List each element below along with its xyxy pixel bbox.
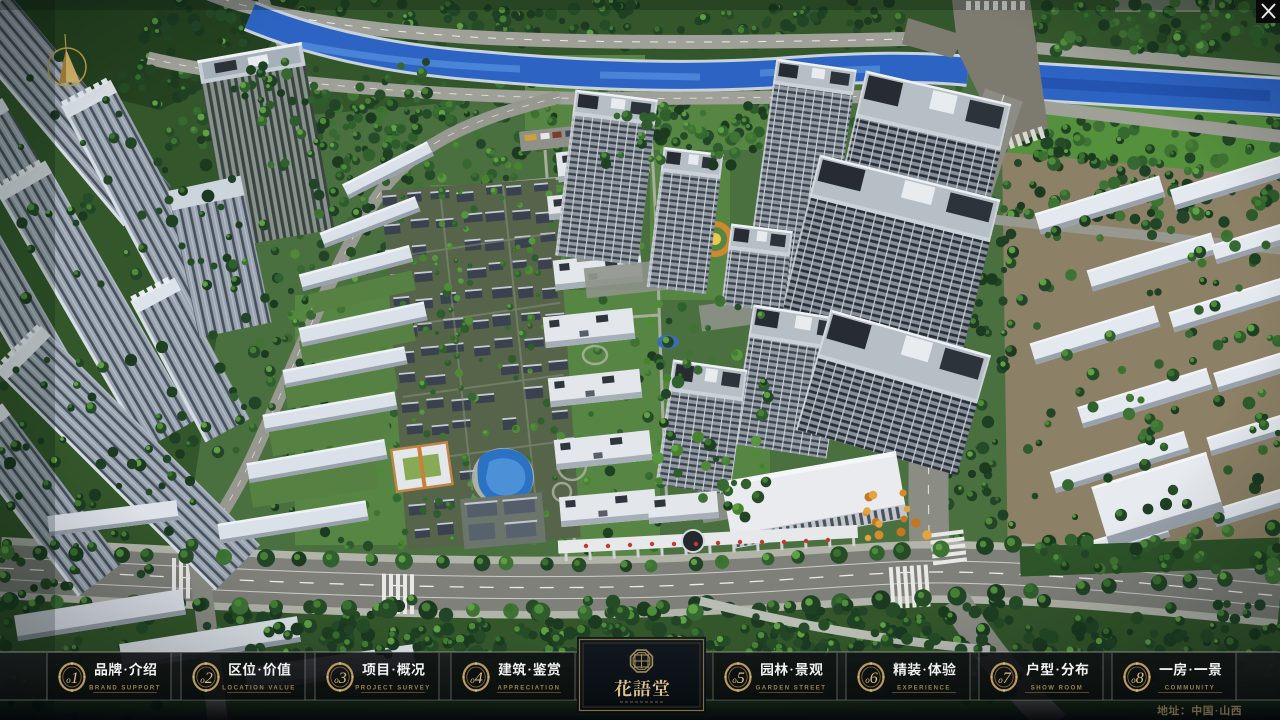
svg-text:APPRECIATION: APPRECIATION — [498, 686, 561, 692]
svg-text:SHOW ROOM: SHOW ROOM — [1031, 686, 1084, 692]
svg-text:EXPERIENCE: EXPERIENCE — [897, 686, 951, 692]
svg-text:COMMUNITY: COMMUNITY — [1165, 686, 1216, 692]
svg-text:PROJECT SURVEY: PROJECT SURVEY — [355, 686, 431, 692]
svg-text:BRAND SUPPORT: BRAND SUPPORT — [89, 686, 161, 692]
svg-text:GARDEN STREET: GARDEN STREET — [756, 686, 827, 692]
svg-text:LOCATION VALUE: LOCATION VALUE — [222, 686, 295, 692]
